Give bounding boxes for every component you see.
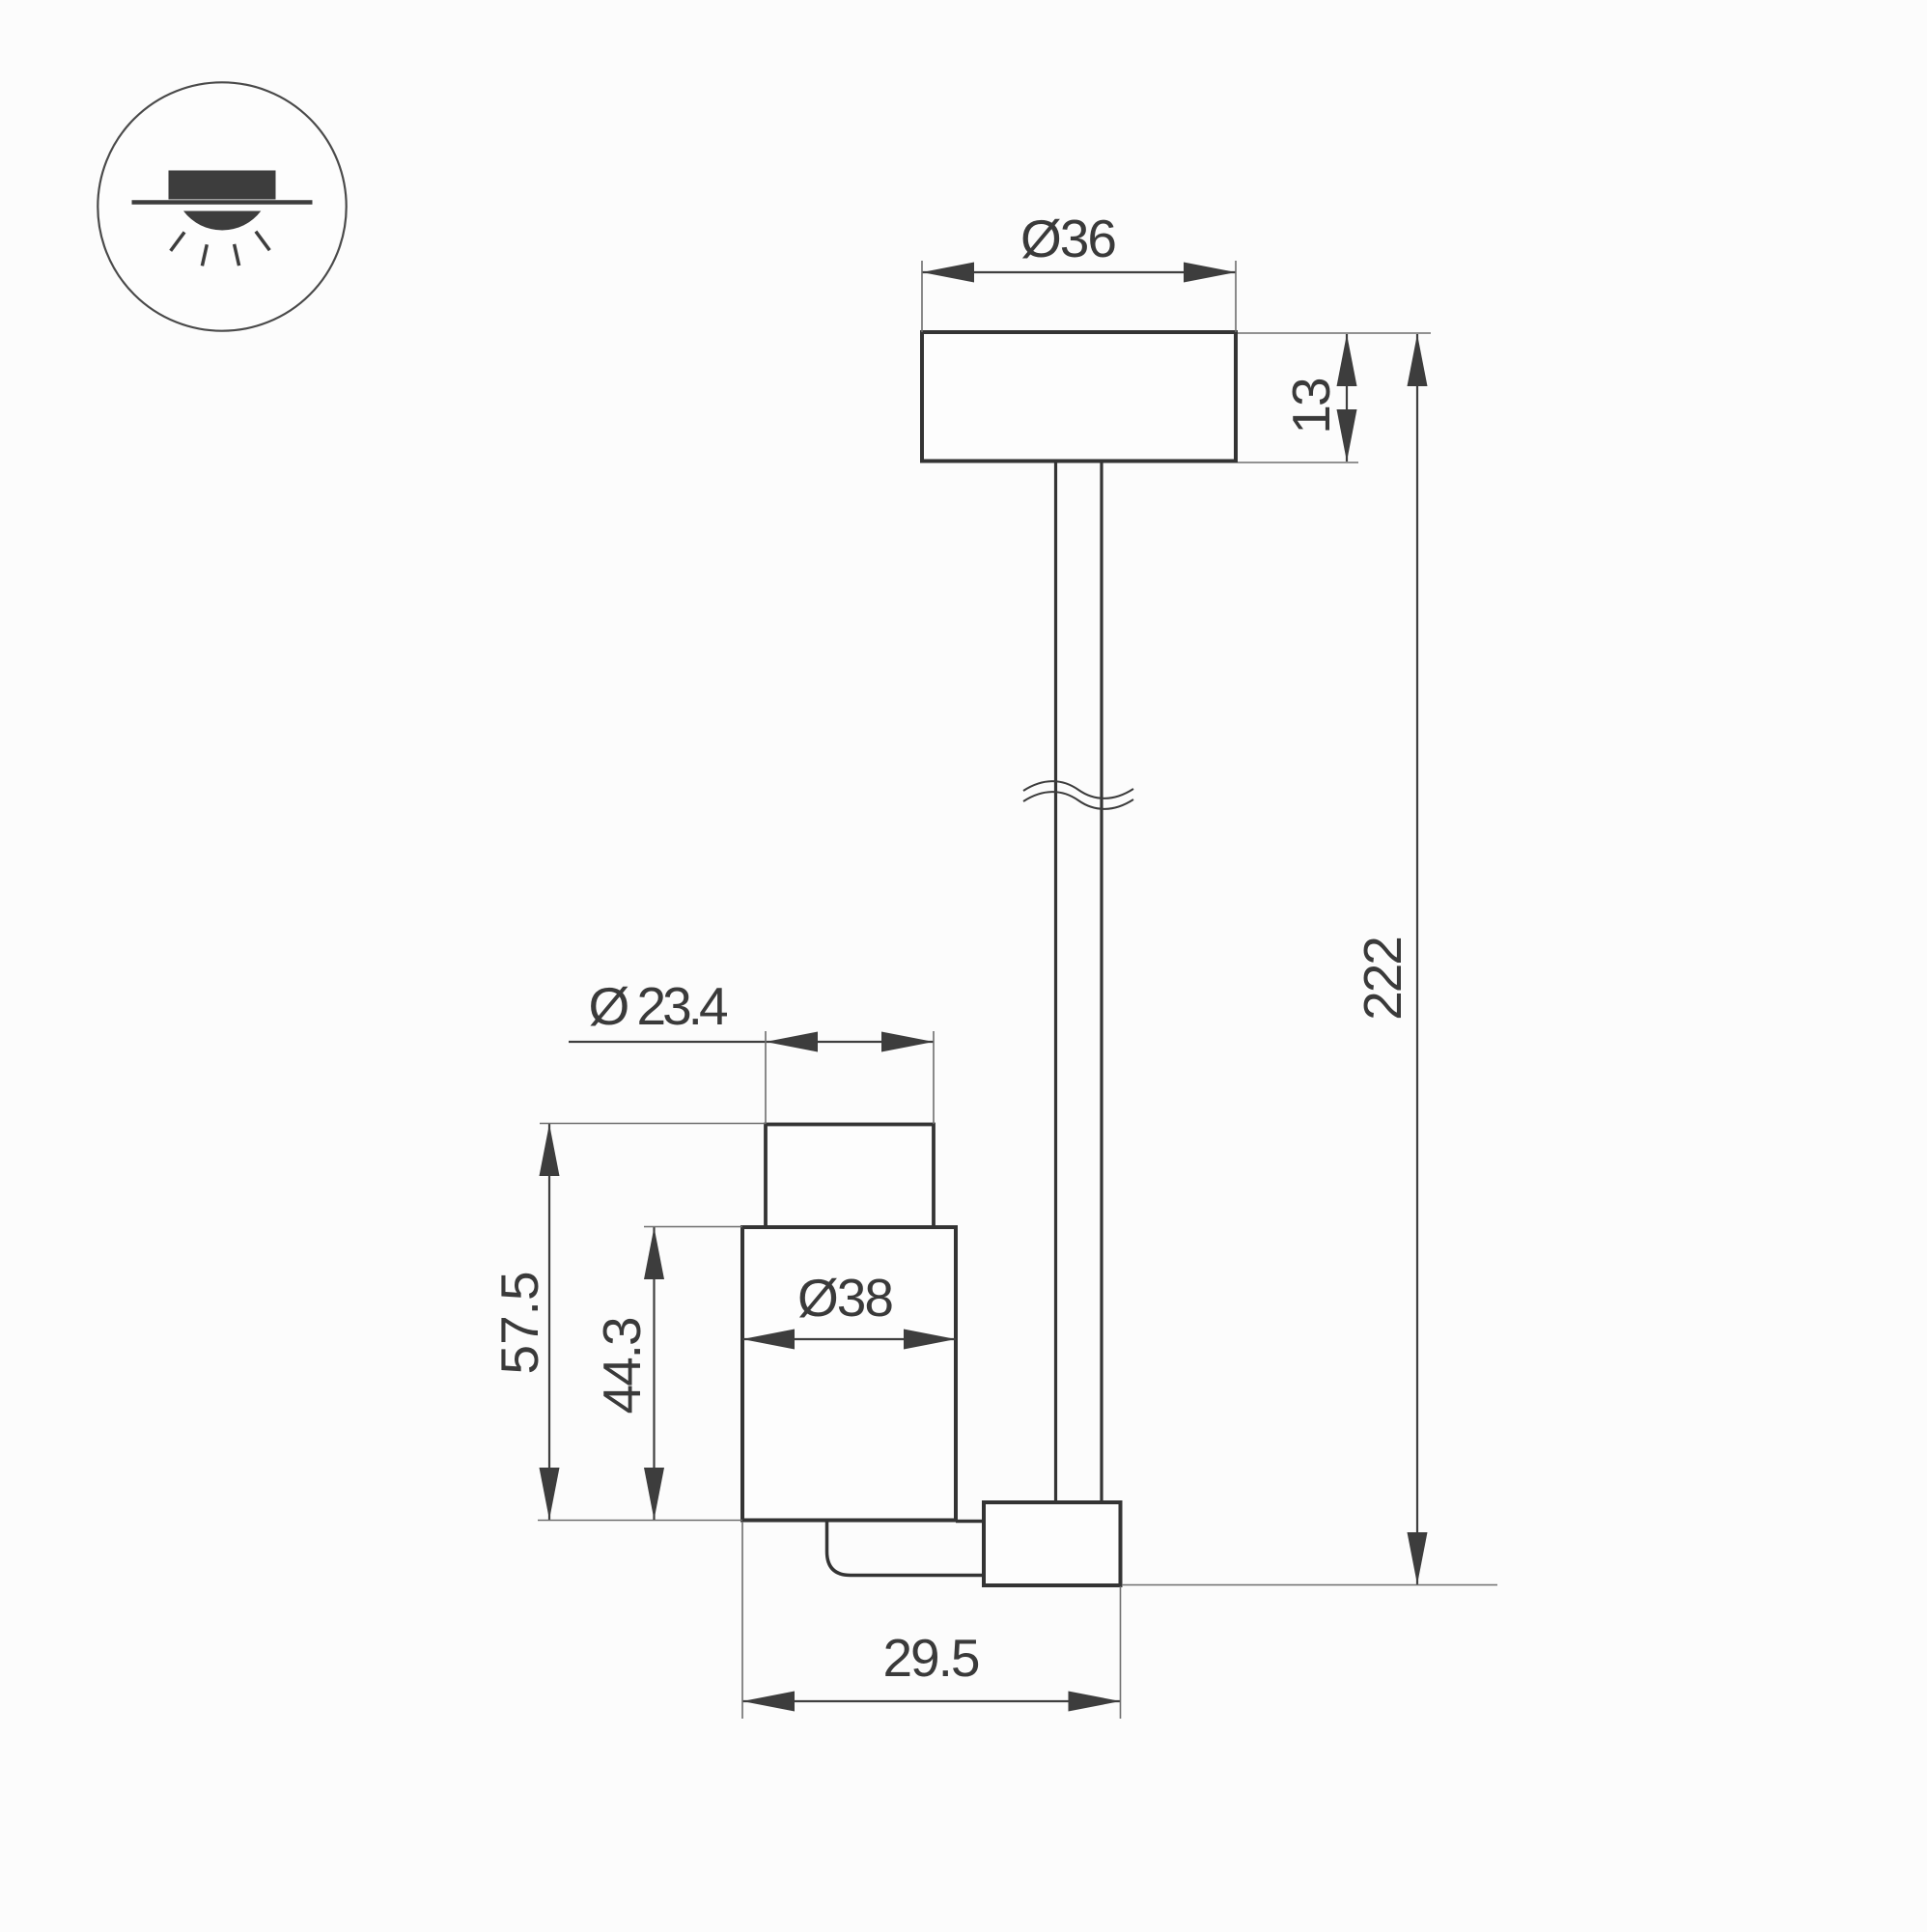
svg-text:Ø 23.4: Ø 23.4 (588, 976, 727, 1036)
svg-text:29.5: 29.5 (882, 1628, 978, 1688)
svg-text:222: 222 (1353, 938, 1412, 1021)
svg-text:Ø38: Ø38 (797, 1268, 892, 1328)
svg-text:Ø36: Ø36 (1020, 209, 1115, 268)
svg-text:44.3: 44.3 (592, 1318, 652, 1414)
svg-text:57.5: 57.5 (489, 1271, 549, 1374)
svg-text:13: 13 (1281, 378, 1341, 434)
